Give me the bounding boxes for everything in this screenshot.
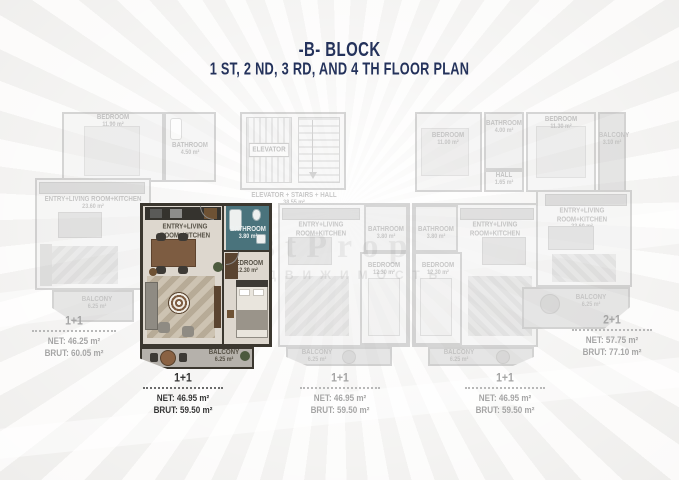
unitD-dining-table: [288, 237, 332, 265]
unitC-blanket: [236, 310, 268, 330]
unitD-bathroom-label: BATHROOM3.80 m²: [364, 226, 408, 242]
unitC-nightstand: [227, 310, 234, 318]
unitC-bed-headboard: [236, 280, 268, 287]
unitD-rug: [285, 276, 349, 336]
floor-plan-page: -B- BLOCK 1 ST, 2 ND, 3 RD, AND 4 TH FLO…: [0, 0, 679, 480]
unitF-balcony-table: [540, 294, 560, 314]
unitF-dining-table: [548, 226, 594, 250]
unitA-living-label: ENTRY+LIVING ROOM+KITCHEN23.60 m²: [40, 196, 146, 212]
unitC-plant-pot: [149, 268, 157, 276]
unitC-stove: [150, 209, 162, 218]
unitA-type: 1+1: [25, 314, 124, 327]
elevator-label: ELEVATOR: [249, 143, 289, 157]
unitA-rug: [52, 246, 118, 284]
unitA-bedroom-label: BEDROOM11.90 m²: [78, 114, 148, 130]
unitD-balcony-table: [342, 350, 356, 364]
unitC-brut: BRUT: 59.50 m²: [136, 404, 231, 417]
unitF-rug: [552, 254, 616, 282]
unitE-type: 1+1: [458, 371, 553, 384]
divider: [300, 387, 380, 389]
unitF-side-balcony-label: BALCONY3.10 m²: [598, 132, 626, 148]
unitA-sofa: [40, 244, 52, 286]
stairs: [298, 117, 340, 183]
unitF-balcony-label: BALCONY6.25 m²: [566, 294, 616, 310]
unitD-balcony-label: BALCONY6.25 m²: [294, 349, 340, 365]
unitD-brut: BRUT: 59.50 m²: [293, 404, 388, 417]
unitE-area-label: 1+1 NET: 46.95 m² BRUT: 59.50 m²: [455, 372, 555, 417]
unitC-sofa: [145, 282, 158, 330]
unitA-area-label: 1+1 NET: 46.25 m² BRUT: 60.05 m²: [22, 315, 126, 360]
unitC-type: 1+1: [136, 371, 231, 384]
unitC-dining-table: [151, 239, 196, 267]
divider: [143, 387, 223, 389]
unitD-area-label: 1+1 NET: 46.95 m² BRUT: 59.50 m²: [290, 372, 390, 417]
unitD-bedroom-label: BEDROOM12.30 m²: [360, 262, 408, 278]
unitC-chair: [156, 266, 166, 274]
unitD-bed: [368, 278, 400, 336]
unitE-bedroom-label: BEDROOM12.30 m²: [414, 262, 462, 278]
unitD-kitchen-counter: [282, 208, 360, 220]
unitE-balcony-table: [496, 350, 510, 364]
unitE-bed: [420, 278, 452, 336]
unitC-pillow: [253, 289, 264, 296]
unitE-balcony-label: BALCONY6.25 m²: [436, 349, 482, 365]
unitF-type: 2+1: [565, 313, 660, 326]
stairs-arrow: [309, 172, 317, 179]
unitC-balcony-chair: [150, 353, 158, 362]
stairs-path: [312, 120, 313, 172]
unitC-armchair: [158, 322, 170, 333]
divider: [465, 387, 545, 389]
unitC-chair: [156, 233, 166, 241]
unitC-pillow: [239, 289, 250, 296]
unitF-bed2: [536, 126, 586, 178]
unitE-kitchen-counter: [460, 208, 534, 220]
unitF-brut: BRUT: 77.10 m²: [565, 346, 660, 359]
unitF-hall-label: HALL1.65 m²: [484, 172, 524, 188]
unitA-kitchen-counter: [39, 182, 145, 194]
unitC-balcony-chair: [179, 353, 187, 362]
unitC-toilet: [252, 209, 261, 221]
divider: [32, 330, 116, 332]
unitE-dining-table: [482, 237, 526, 265]
unitC-bathroom-label: BATHROOM3.80 m²: [228, 226, 268, 242]
unitE-brut: BRUT: 59.50 m²: [458, 404, 553, 417]
unitC-plant: [213, 262, 223, 272]
divider: [572, 329, 652, 331]
unitA-bed: [84, 126, 140, 176]
unitC-tv-unit: [214, 286, 221, 328]
unitF-bathroom-label: BATHROOM4.00 m²: [484, 120, 524, 136]
unitF-kitchen-counter: [545, 194, 627, 206]
unitC-chair: [178, 233, 188, 241]
unitF-bedroom1-label: BEDROOM11.00 m²: [416, 132, 480, 148]
unitF-area-label: 2+1 NET: 57.75 m² BRUT: 77.10 m²: [562, 314, 662, 359]
unitE-bathroom-label: BATHROOM3.80 m²: [414, 226, 458, 242]
unitC-area-label: 1+1 NET: 46.95 m² BRUT: 59.50 m²: [133, 372, 233, 417]
unitA-balcony-label: BALCONY6.25 m²: [72, 296, 122, 312]
unitF-side-balcony: [598, 112, 626, 192]
unitA-tub: [170, 118, 182, 140]
unitA-dining-table: [58, 212, 102, 238]
unitD-type: 1+1: [293, 371, 388, 384]
unitA-brut: BRUT: 60.05 m²: [25, 347, 124, 360]
unitC-balcony-plant: [240, 351, 250, 361]
unitA-bathroom-label: BATHROOM4.50 m²: [166, 142, 214, 158]
unitC-sink: [170, 209, 182, 218]
unitC-chair: [178, 266, 188, 274]
unitF-bedroom2-label: BEDROOM11.30 m²: [528, 116, 594, 132]
unitC-coffee-table: [168, 292, 190, 314]
elevator-shaft: ELEVATOR: [246, 117, 292, 183]
unitC-balcony-table: [160, 350, 176, 366]
unitC-armchair: [182, 326, 194, 337]
